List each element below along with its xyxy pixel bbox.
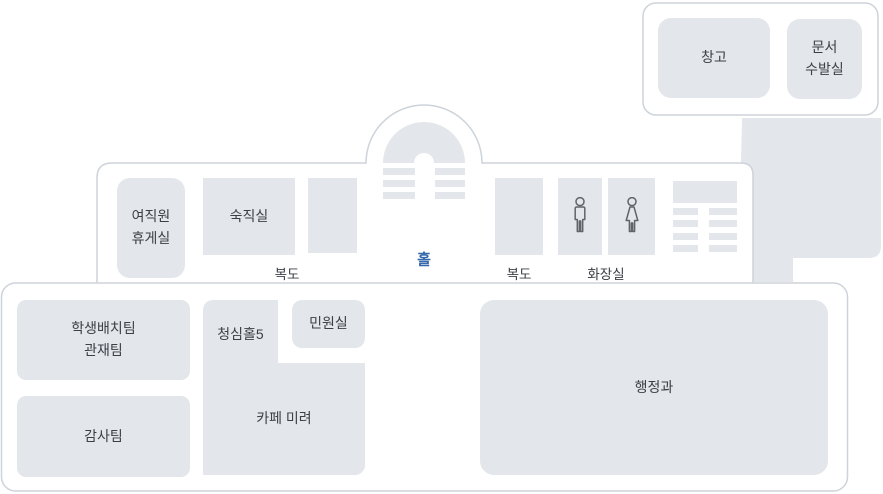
stair-step — [435, 180, 465, 187]
room-corridor-block — [495, 178, 543, 255]
male-restroom-icon — [570, 197, 590, 237]
female-restroom-icon — [622, 197, 642, 237]
room-night-duty: 숙직실 — [203, 178, 295, 255]
room-admin-department: 행정과 — [480, 300, 828, 475]
room-audit-team-label: 감사팀 — [84, 426, 123, 448]
stair-step — [673, 245, 698, 252]
connector-passage — [741, 118, 881, 282]
stair-step — [383, 192, 415, 199]
room-admin-department-label: 행정과 — [635, 377, 674, 399]
room-womens-lounge: 여직원 휴게실 — [117, 178, 185, 278]
floor-plan: 창고 문서 수발실 여직원 휴게실 숙직실 복도 홀 복도 — [0, 0, 883, 494]
stair-step — [673, 208, 698, 215]
stair-step — [673, 220, 698, 227]
room-storage: 창고 — [658, 18, 770, 98]
stair-step — [673, 233, 698, 240]
room-night-duty-label: 숙직실 — [230, 206, 269, 228]
stair-step — [709, 233, 737, 240]
corridor-left-label: 복도 — [275, 263, 300, 283]
corridor-right-label: 복도 — [507, 263, 532, 283]
room-cafe-mirye-label: 카페 미려 — [256, 408, 311, 430]
room-document-dispatch-label: 문서 수발실 — [805, 37, 844, 80]
room-civil-affairs-label: 민원실 — [309, 313, 348, 335]
stair-step — [383, 180, 415, 187]
stair-step — [709, 208, 737, 215]
stair-step — [435, 192, 465, 199]
room-civil-affairs: 민원실 — [292, 300, 365, 348]
room-document-dispatch: 문서 수발실 — [787, 19, 862, 99]
room-student-placement-team-label: 학생배치팀 관재팀 — [71, 318, 135, 361]
stair-step — [383, 168, 415, 175]
room-audit-team: 감사팀 — [17, 396, 190, 477]
room-restroom-male — [558, 178, 602, 255]
hall-label: 홀 — [417, 249, 431, 270]
stair-step — [709, 220, 737, 227]
restroom-label: 화장실 — [587, 263, 624, 283]
room-cafe-mirye: 카페 미려 — [203, 363, 365, 475]
room-storage-label: 창고 — [701, 47, 727, 69]
stair-step — [435, 168, 465, 175]
room-student-placement-team: 학생배치팀 관재팀 — [17, 300, 190, 380]
room-unlabeled-left — [308, 178, 357, 253]
room-cheongsim-hall-5-label: 청심홀5 — [217, 324, 263, 346]
room-restroom-female — [608, 178, 655, 255]
stairs-landing — [673, 181, 737, 203]
stair-step — [709, 245, 737, 252]
room-womens-lounge-label: 여직원 휴게실 — [132, 206, 171, 249]
